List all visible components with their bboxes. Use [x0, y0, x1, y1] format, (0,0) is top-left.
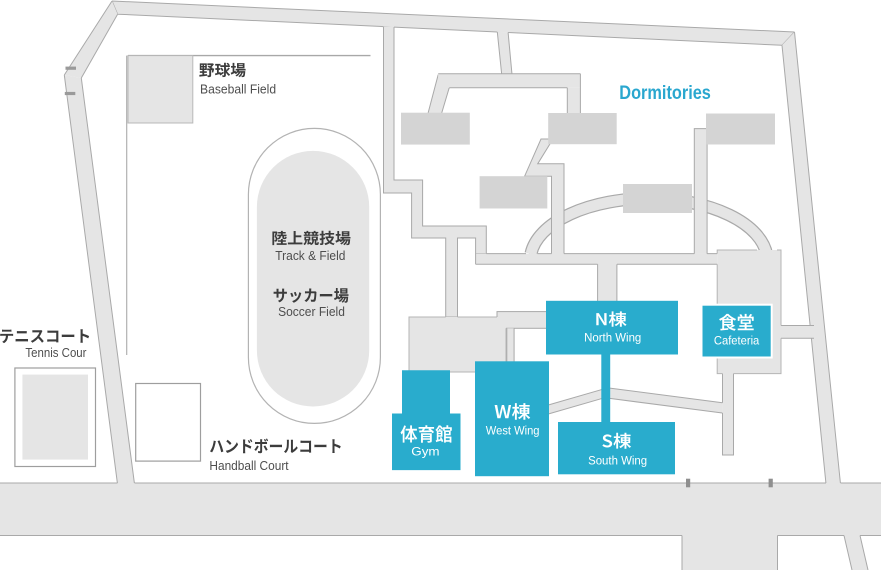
- svg-text:Gym: Gym: [411, 444, 439, 458]
- svg-text:West Wing: West Wing: [486, 424, 540, 438]
- svg-text:Cafeteria: Cafeteria: [714, 334, 760, 348]
- svg-text:North Wing: North Wing: [584, 331, 641, 345]
- svg-text:Track & Field: Track & Field: [275, 249, 345, 263]
- svg-text:Handball Court: Handball Court: [209, 459, 289, 473]
- svg-text:South Wing: South Wing: [588, 454, 647, 468]
- svg-text:Dormitories: Dormitories: [619, 82, 711, 104]
- svg-text:Baseball Field: Baseball Field: [200, 82, 276, 96]
- svg-text:Tennis Cour: Tennis Cour: [25, 346, 86, 360]
- svg-text:Soccer Field: Soccer Field: [278, 305, 345, 319]
